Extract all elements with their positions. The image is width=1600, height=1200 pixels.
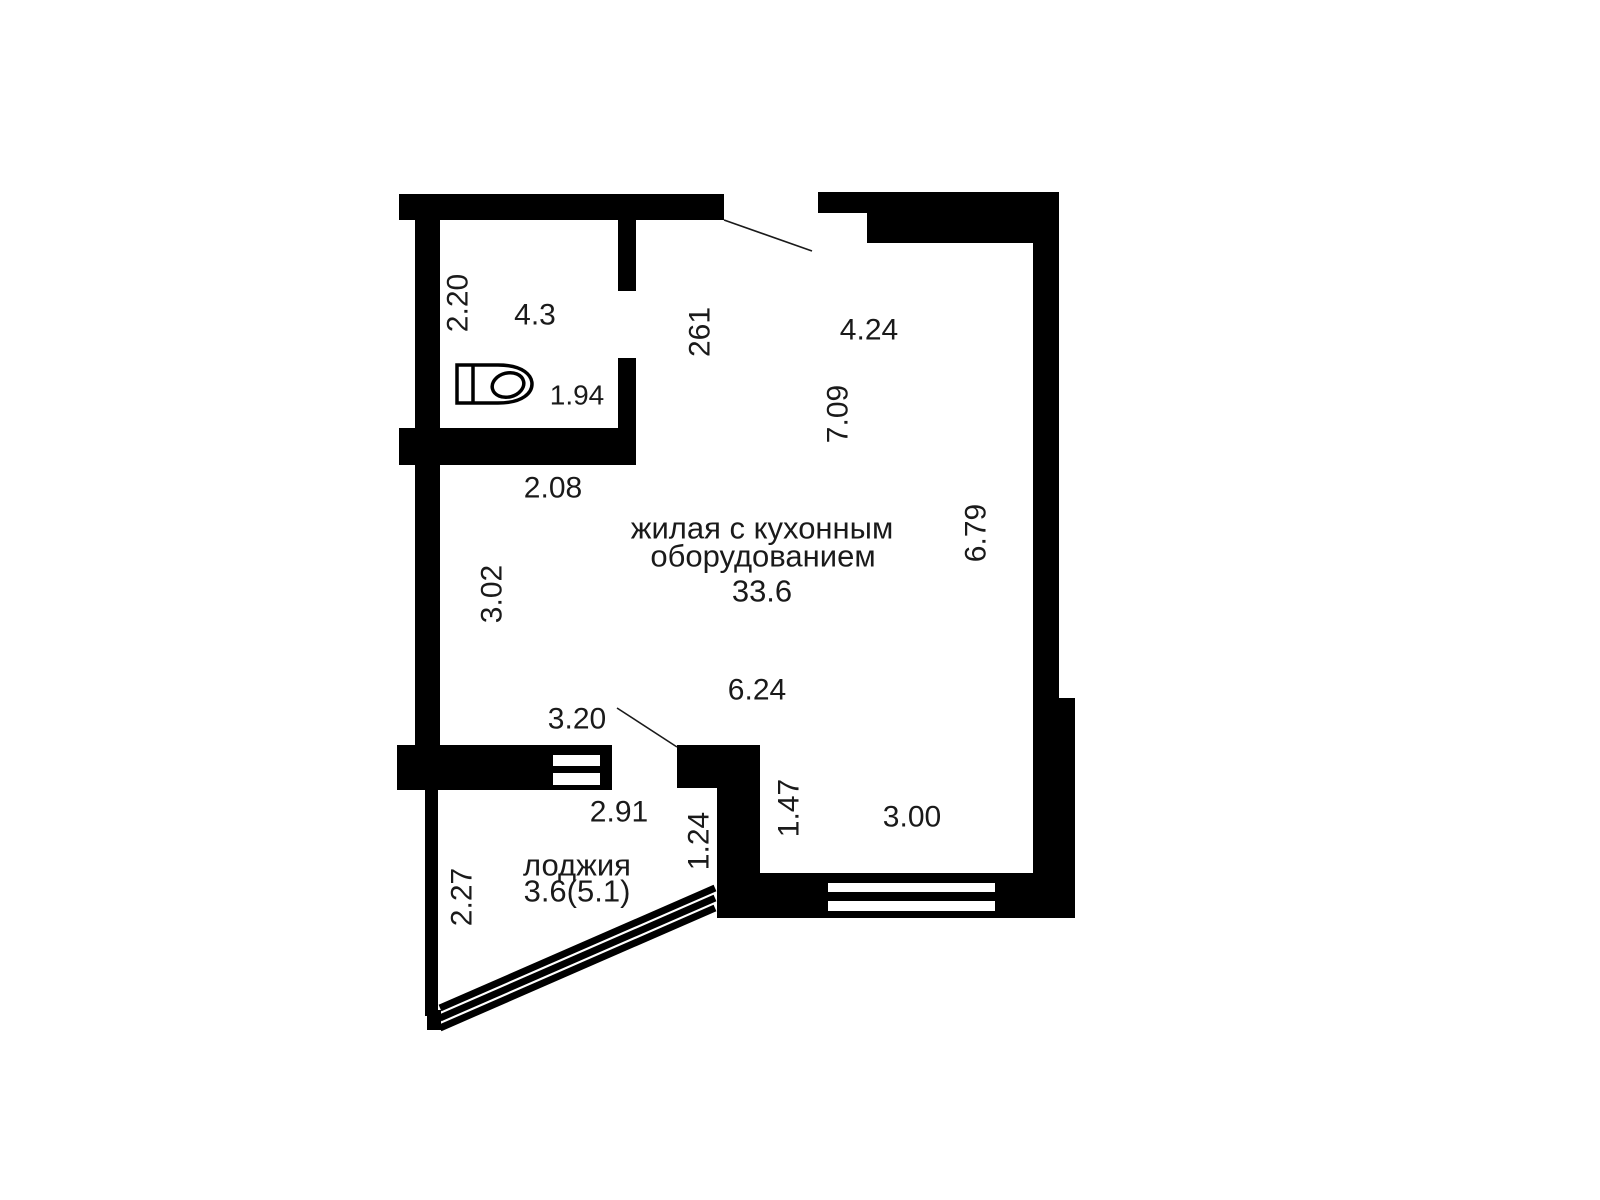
dim-window-width: 3.00 [883,801,941,834]
dim-loggia-right-edge: 1.24 [683,812,716,870]
wall-loggia-door-block [677,745,760,788]
dim-loggia-width: 2.91 [590,796,648,829]
wall-corner [717,788,760,877]
dim-left-offset: 2.08 [524,472,582,505]
window-loggia-slat-1 [553,755,600,766]
living-room-area: 33.6 [732,574,792,609]
loggia-door-leader-line [617,708,677,747]
toilet-icon [457,365,532,403]
wall-bottom [717,873,1075,918]
dim-entry-niche: 261 [684,307,717,357]
loggia-glazing-line-3 [440,908,715,1028]
dim-right-upper-height: 7.09 [822,385,855,443]
floor-plan: 2.20 4.3 1.94 261 4.24 7.09 6.79 жилая с… [0,0,1600,1200]
entrance-leader-line [724,220,812,251]
window-bottom-slat-1 [828,883,995,892]
wall-top-right-lower [867,213,1059,243]
loggia-area: 3.6(5.1) [524,874,631,909]
window-loggia-slat-2 [553,773,600,785]
living-room-name-line2: оборудованием [650,539,875,574]
dim-top-width: 4.24 [840,314,898,347]
loggia-glazing-line-2 [440,898,715,1018]
wall-top [399,194,724,220]
window-bottom-slat-2 [828,901,995,911]
dim-living-bottom-width: 6.24 [728,674,786,707]
dim-loggia-depth: 2.27 [446,868,479,926]
bathroom-area-label: 4.3 [514,299,556,332]
wall-right-upper [1033,213,1059,698]
wall-top-right-upper [818,192,1059,213]
wall-bathroom-right-upper [618,220,636,291]
wall-loggia-foot [427,1010,441,1030]
dim-right-height: 6.79 [960,504,993,562]
floor-plan-canvas: 2.20 4.3 1.94 261 4.24 7.09 6.79 жилая с… [0,0,1600,1200]
dim-left-height: 3.02 [476,565,509,623]
dim-corner-wall-height: 1.47 [773,779,806,837]
wall-loggia-left [425,790,438,1016]
dim-loggia-door-width: 3.20 [548,703,606,736]
wall-bathroom-bottom [399,428,636,465]
dim-bathroom-width: 1.94 [550,380,605,411]
wall-left [415,218,440,747]
dim-bathroom-depth: 2.20 [442,274,475,332]
